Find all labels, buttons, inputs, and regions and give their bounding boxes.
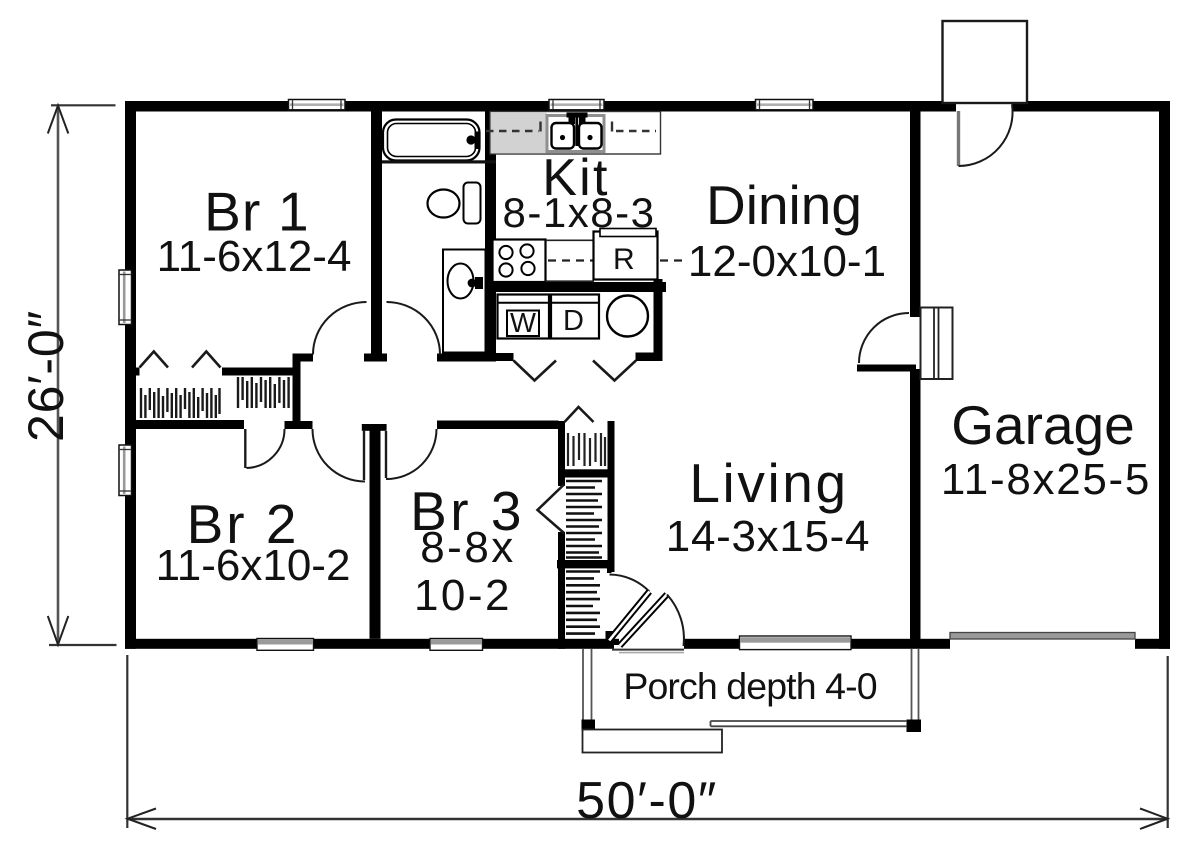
svg-text:11-6x10-2: 11-6x10-2: [156, 541, 351, 590]
svg-text:Dining: Dining: [706, 174, 862, 236]
svg-text:11-6x12-4: 11-6x12-4: [157, 232, 352, 281]
svg-text:11-8x25-5: 11-8x25-5: [941, 455, 1151, 504]
svg-text:8-1x8-3: 8-1x8-3: [503, 189, 656, 236]
svg-text:50′-0″: 50′-0″: [576, 772, 718, 830]
svg-text:D: D: [563, 305, 584, 337]
svg-text:Garage: Garage: [951, 394, 1134, 456]
svg-text:26′-0″: 26′-0″: [18, 310, 74, 442]
svg-text:R: R: [613, 243, 635, 276]
svg-text:W: W: [510, 307, 536, 338]
svg-text:8-8x: 8-8x: [420, 523, 516, 572]
svg-text:Porch depth 4-0: Porch depth 4-0: [623, 665, 876, 707]
svg-text:14-3x15-4: 14-3x15-4: [666, 512, 870, 561]
svg-text:Living: Living: [689, 452, 848, 514]
svg-text:12-0x10-1: 12-0x10-1: [688, 237, 886, 286]
svg-text:10-2: 10-2: [414, 571, 512, 620]
